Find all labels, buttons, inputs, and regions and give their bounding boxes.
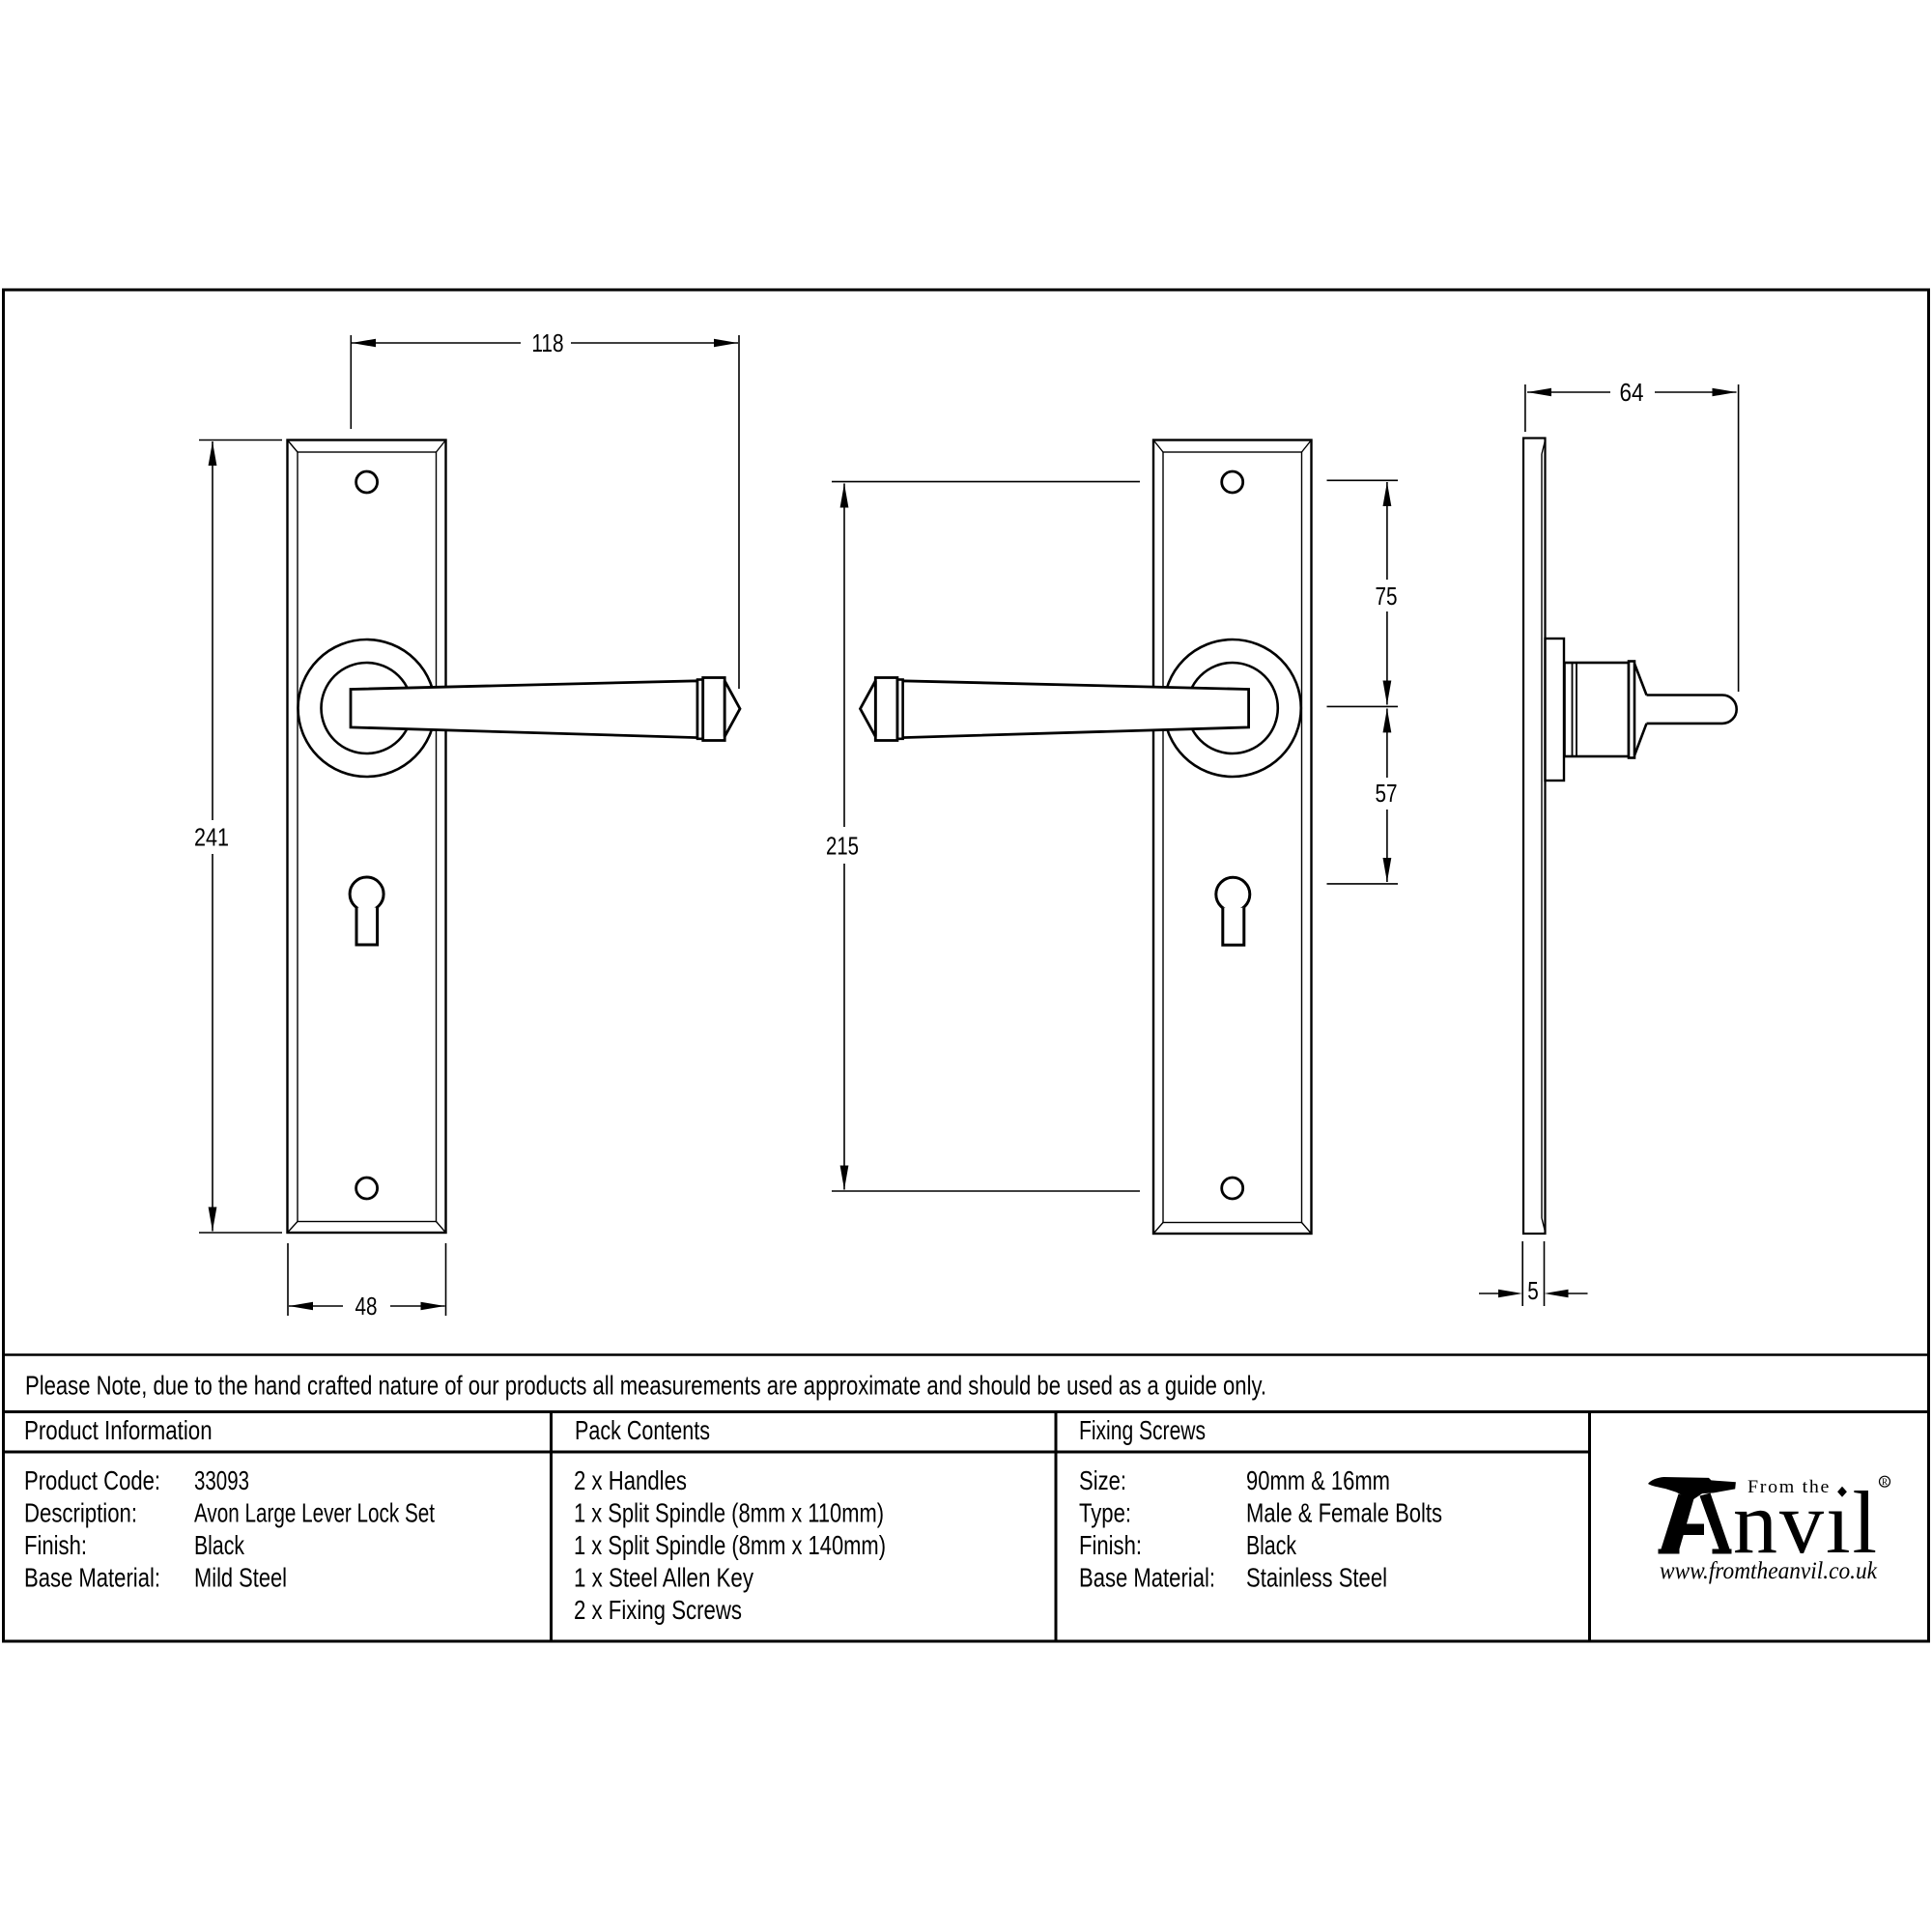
svg-text:Finish:: Finish: xyxy=(24,1530,87,1560)
svg-text:Base Material:: Base Material: xyxy=(24,1563,160,1593)
svg-text:Male & Female Bolts: Male & Female Bolts xyxy=(1246,1498,1442,1528)
svg-text:Product Information: Product Information xyxy=(24,1415,213,1445)
svg-text:90mm & 16mm: 90mm & 16mm xyxy=(1246,1465,1390,1495)
svg-text:Size:: Size: xyxy=(1079,1465,1126,1495)
svg-text:1 x Steel Allen Key: 1 x Steel Allen Key xyxy=(574,1563,753,1593)
svg-text:nvıl: nvıl xyxy=(1733,1473,1879,1572)
svg-text:2 x Handles: 2 x Handles xyxy=(574,1465,687,1495)
svg-text:Black: Black xyxy=(1246,1530,1297,1560)
svg-text:Finish:: Finish: xyxy=(1079,1530,1142,1560)
svg-text:Stainless Steel: Stainless Steel xyxy=(1246,1563,1387,1593)
svg-text:Please Note, due to the hand c: Please Note, due to the hand crafted nat… xyxy=(25,1371,1266,1401)
svg-text:Type:: Type: xyxy=(1079,1498,1131,1528)
svg-text:1 x Split Spindle (8mm x 140mm: 1 x Split Spindle (8mm x 140mm) xyxy=(574,1530,886,1560)
svg-text:64: 64 xyxy=(1620,378,1644,407)
svg-text:Mild Steel: Mild Steel xyxy=(194,1563,287,1593)
svg-text:5: 5 xyxy=(1527,1276,1539,1305)
svg-text:48: 48 xyxy=(355,1292,378,1321)
svg-text:241: 241 xyxy=(194,823,229,852)
svg-text:1 x Split Spindle (8mm x 110mm: 1 x Split Spindle (8mm x 110mm) xyxy=(574,1498,884,1528)
svg-text:118: 118 xyxy=(531,328,563,357)
svg-text:R: R xyxy=(1882,1477,1888,1487)
svg-text:Pack Contents: Pack Contents xyxy=(575,1415,710,1445)
svg-text:Fixing Screws: Fixing Screws xyxy=(1079,1415,1206,1445)
svg-text:Product Code:: Product Code: xyxy=(24,1465,160,1495)
svg-text:75: 75 xyxy=(1376,582,1398,611)
svg-text:33093: 33093 xyxy=(194,1465,249,1495)
svg-text:Black: Black xyxy=(194,1530,245,1560)
svg-text:Avon Large Lever Lock Set: Avon Large Lever Lock Set xyxy=(194,1498,435,1528)
svg-text:215: 215 xyxy=(826,832,859,861)
svg-text:Description:: Description: xyxy=(24,1498,137,1528)
svg-text:www.fromtheanvil.co.uk: www.fromtheanvil.co.uk xyxy=(1660,1558,1878,1584)
svg-text:2 x Fixing Screws: 2 x Fixing Screws xyxy=(574,1595,742,1625)
svg-text:57: 57 xyxy=(1376,779,1398,808)
svg-text:Base Material:: Base Material: xyxy=(1079,1563,1215,1593)
